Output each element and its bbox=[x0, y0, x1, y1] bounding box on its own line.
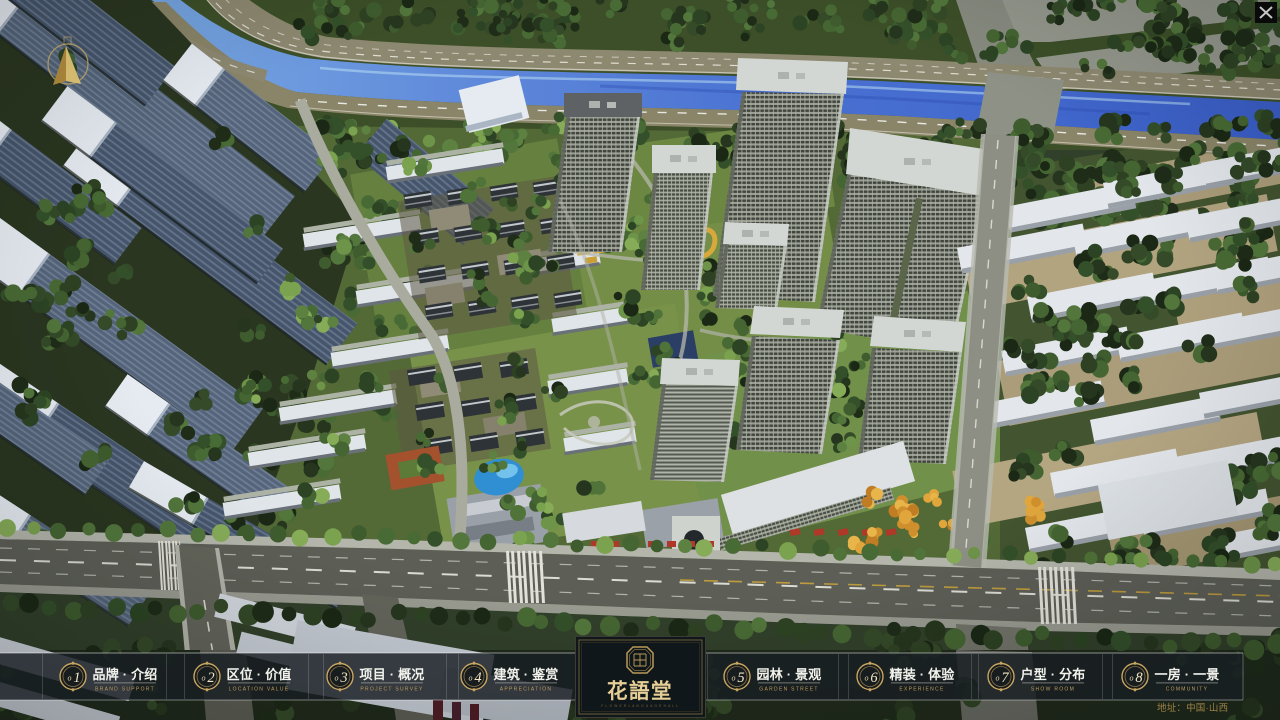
svg-text:户型 · 分布: 户型 · 分布 bbox=[1021, 667, 1086, 682]
svg-text:5: 5 bbox=[737, 670, 744, 686]
svg-text:SHOW ROOM: SHOW ROOM bbox=[1031, 687, 1075, 693]
svg-text:APPRECIATION: APPRECIATION bbox=[500, 687, 552, 693]
svg-text:o: o bbox=[996, 674, 1000, 683]
svg-text:COMMUNITY: COMMUNITY bbox=[1166, 687, 1209, 693]
svg-text:o: o bbox=[202, 674, 206, 683]
svg-text:建筑 · 鉴赏: 建筑 · 鉴赏 bbox=[494, 667, 559, 682]
svg-text:PROJECT SURVEY: PROJECT SURVEY bbox=[360, 687, 423, 693]
svg-text:园林 · 景观: 园林 · 景观 bbox=[757, 667, 822, 682]
svg-text:7: 7 bbox=[1001, 670, 1009, 686]
svg-text:GARDEN STREET: GARDEN STREET bbox=[759, 687, 818, 693]
svg-text:BRAND SUPPORT: BRAND SUPPORT bbox=[95, 687, 155, 693]
svg-text:o: o bbox=[469, 674, 473, 683]
svg-text:o: o bbox=[335, 674, 339, 683]
svg-text:LOCATION VALUE: LOCATION VALUE bbox=[229, 687, 290, 693]
svg-text:一房 · 一景: 一房 · 一景 bbox=[1155, 667, 1220, 682]
svg-text:2: 2 bbox=[207, 670, 214, 686]
svg-text:3: 3 bbox=[339, 670, 347, 686]
svg-text:o: o bbox=[732, 674, 736, 683]
svg-text:4: 4 bbox=[474, 670, 481, 686]
svg-text:8: 8 bbox=[1135, 670, 1143, 686]
svg-text:6: 6 bbox=[870, 670, 878, 686]
svg-text:精装 · 体验: 精装 · 体验 bbox=[890, 667, 956, 682]
svg-text:花語堂: 花語堂 bbox=[607, 679, 673, 703]
svg-text:EXPERIENCE: EXPERIENCE bbox=[899, 687, 944, 693]
svg-text:项目 · 概况: 项目 · 概况 bbox=[360, 667, 425, 682]
svg-text:F L O W E R L A N G U A G E: F L O W E R L A N G U A G E H A L L bbox=[601, 704, 678, 708]
svg-text:品牌 · 介绍: 品牌 · 介绍 bbox=[93, 667, 158, 682]
svg-text:o: o bbox=[1130, 674, 1134, 683]
svg-text:区位 · 价值: 区位 · 价值 bbox=[227, 667, 292, 682]
svg-text:o: o bbox=[68, 674, 72, 683]
svg-text:1: 1 bbox=[73, 670, 80, 686]
svg-text:地址：中国·山西: 地址：中国·山西 bbox=[1157, 702, 1228, 714]
svg-text:o: o bbox=[865, 674, 869, 683]
